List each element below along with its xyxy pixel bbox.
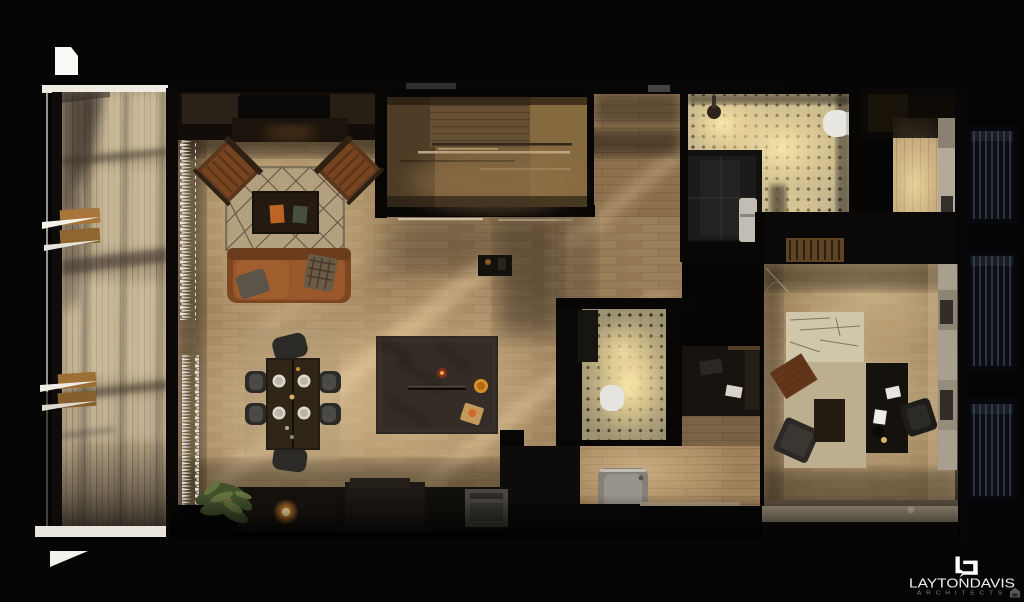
svg-text:ARCHITECTS: ARCHITECTS bbox=[917, 591, 1007, 597]
svg-text:LAYTONDAVIS: LAYTONDAVIS bbox=[909, 576, 1015, 591]
